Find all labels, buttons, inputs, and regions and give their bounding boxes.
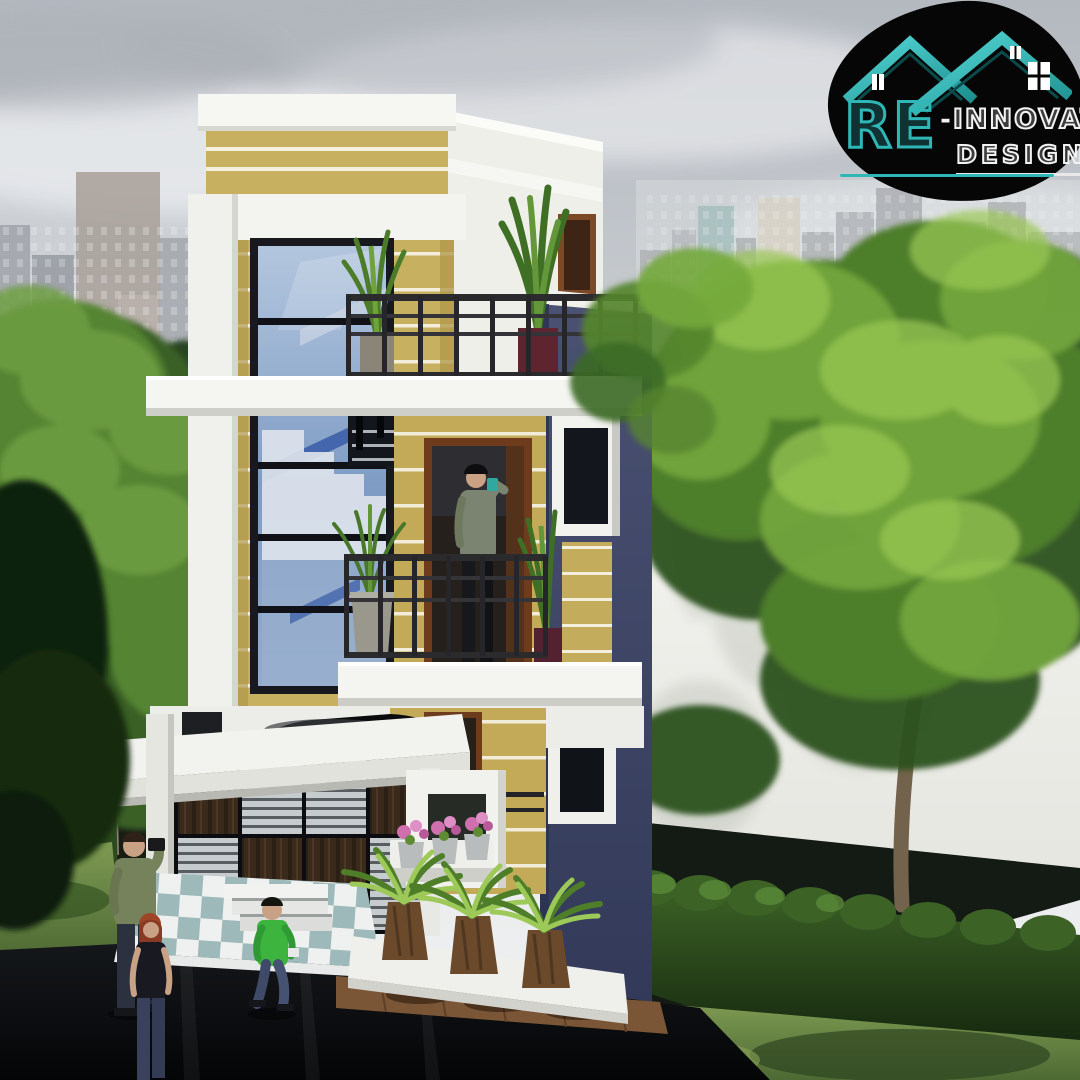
logo-right-text: - INNOVATE DESIGNS: [940, 104, 1080, 176]
tower-white-pier: [188, 194, 238, 712]
logo-innovate-text: INNOVATE: [953, 104, 1080, 135]
logo-dash-text: -: [940, 107, 951, 133]
brand-logo: RE - INNOVATE DESIGNS: [828, 2, 1080, 202]
logo-re-text: RE: [844, 100, 936, 153]
slab-band: [146, 376, 642, 416]
navy-window-upper: [552, 416, 620, 536]
logo-text: RE - INNOVATE DESIGNS: [844, 100, 1080, 176]
balcony-slab: [338, 662, 642, 706]
tower-parapet: [198, 94, 456, 194]
render-canvas: RE - INNOVATE DESIGNS: [0, 0, 1080, 1080]
logo-underline: [840, 174, 1054, 177]
logo-designs-text: DESIGNS: [956, 140, 1080, 176]
